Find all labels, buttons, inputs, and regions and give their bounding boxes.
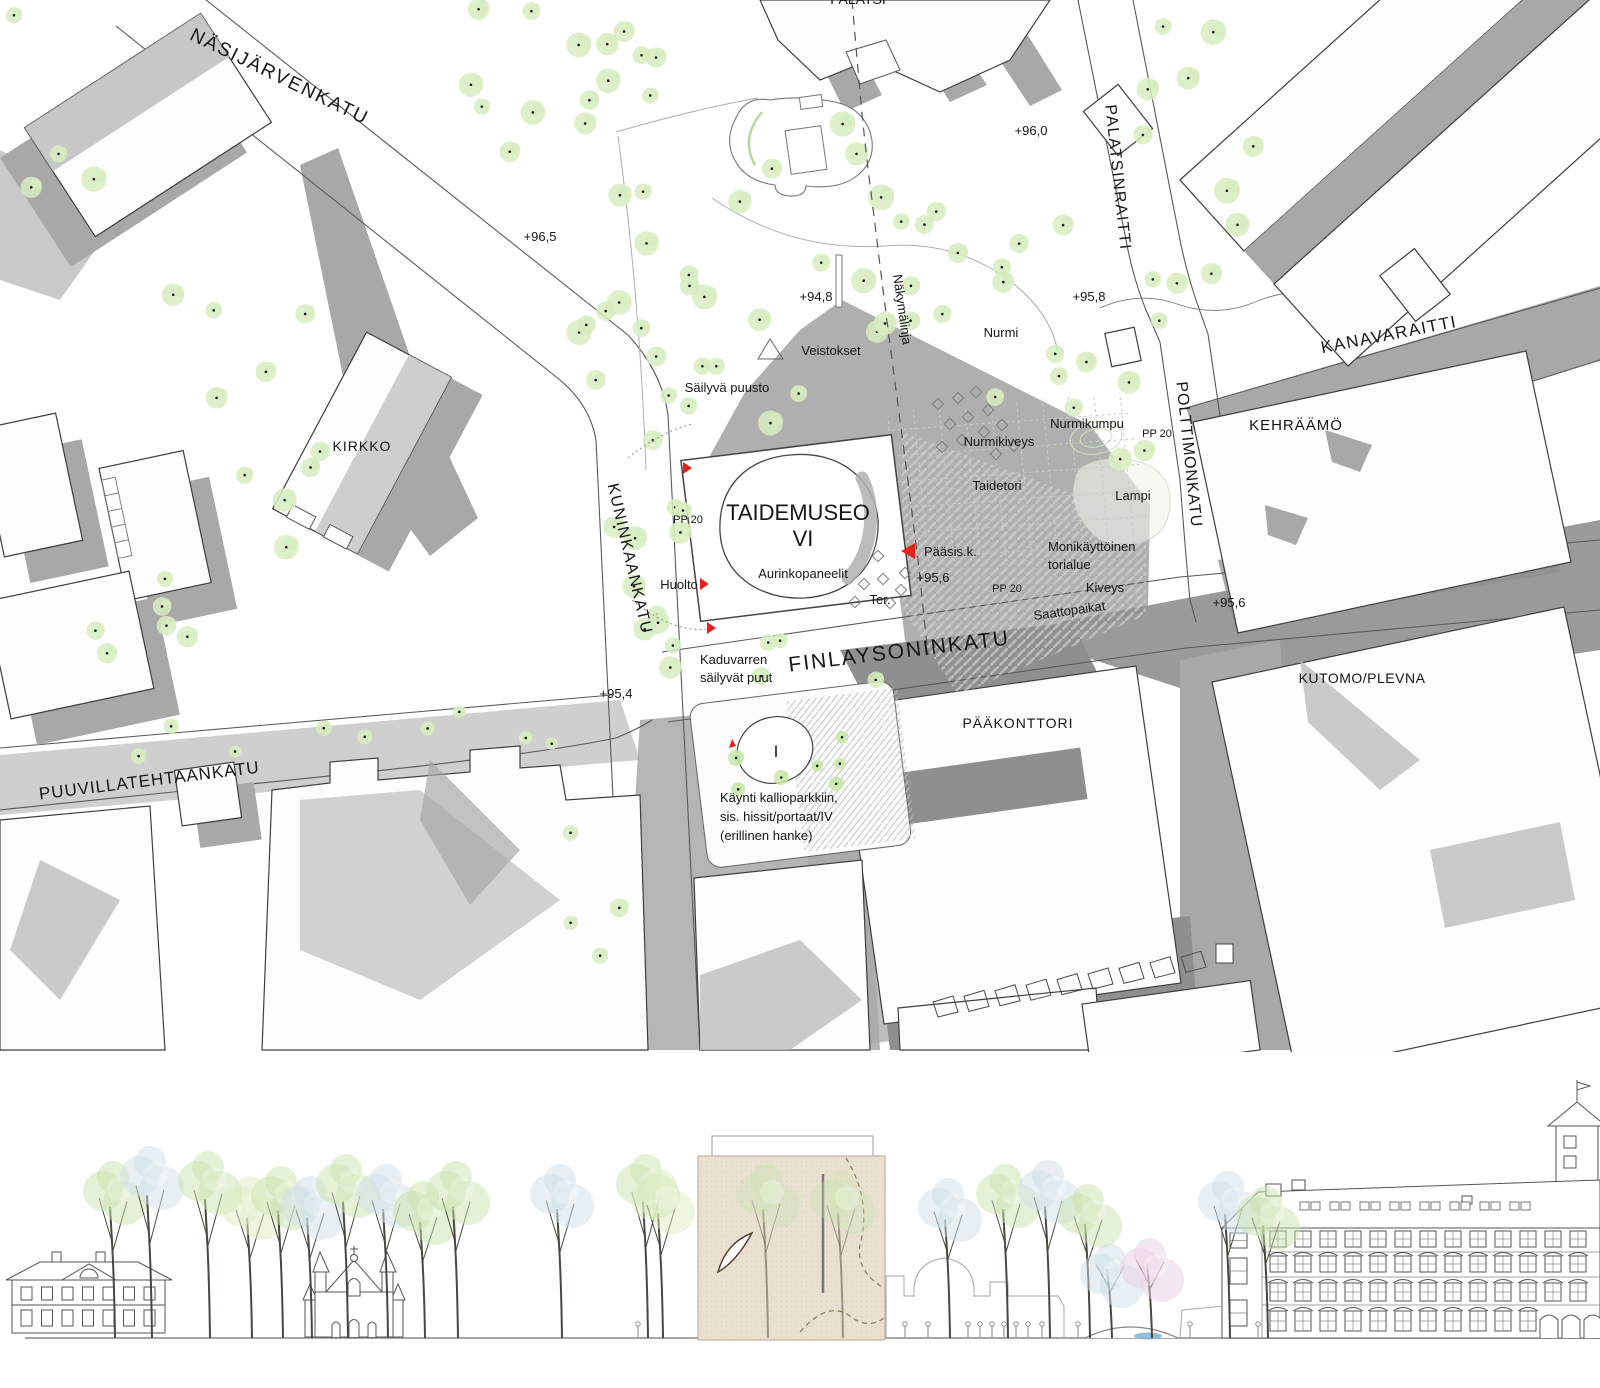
tree-trunk-dot [1176, 282, 1179, 285]
villa-window [21, 1310, 32, 1326]
site-plan-sheet: NÄSIJÄRVENKATU KUNINKAANKATU FINLAYSONIN… [0, 0, 1600, 1388]
tree-trunk-dot [1058, 375, 1061, 378]
tree-trunk-dot [1146, 88, 1149, 91]
tree-trunk-dot [703, 296, 706, 299]
tree-trunk-dot [604, 310, 607, 313]
tree-trunk-dot [93, 178, 96, 181]
spot-elevation: +94,8 [800, 289, 833, 304]
tree-trunk-dot [426, 727, 429, 730]
tree-trunk-dot [715, 365, 718, 368]
tree-trunk-dot [618, 907, 621, 910]
chapel-arch-window [348, 1279, 360, 1297]
chapel-spire [380, 1252, 396, 1272]
site-plan: NÄSIJÄRVENKATU KUNINKAANKATU FINLAYSONIN… [0, 0, 1600, 1073]
tree-trunk-dot [164, 578, 167, 581]
villa-window [83, 1287, 94, 1300]
tree-trunk-dot [682, 509, 685, 512]
annotation-terassi: Ter. [870, 592, 891, 607]
tower-cap [1548, 1102, 1600, 1126]
tree-trunk-dot [1162, 25, 1165, 28]
annotation-pp20: PP 20 [673, 514, 703, 526]
tree-trunk-dot [957, 252, 960, 255]
tree-trunk-dot [480, 105, 483, 108]
annotation-nurmikumpu: Nurmikumpu [1050, 416, 1124, 431]
tree-trunk [643, 1202, 648, 1339]
spot-elevation: +95,8 [1073, 289, 1106, 304]
roof-dormer [1330, 1202, 1339, 1210]
tree-trunk [205, 1199, 210, 1338]
tree-trunk-dot [304, 313, 307, 316]
tree-trunk-dot [1226, 189, 1229, 192]
annotation-paasisaankaynti: Pääsis.k. [924, 544, 977, 559]
tree-trunk-dot [30, 186, 33, 189]
tree-canopy-light [835, 1186, 859, 1210]
tree-trunk-dot [607, 79, 610, 82]
villa-window [124, 1310, 135, 1326]
tree-trunk-dot [234, 750, 237, 753]
tower-window [1564, 1136, 1576, 1148]
roof-dormer [1401, 1202, 1410, 1210]
tree-trunk-dot [283, 499, 286, 502]
annotation-pp20: PP 20 [992, 583, 1022, 595]
tree-trunk-dot [618, 301, 621, 304]
tree-trunk-dot [841, 123, 844, 126]
water-patch [1134, 1333, 1162, 1340]
tree-trunk-dot [215, 397, 218, 400]
person-figure [1188, 1322, 1192, 1326]
tree-trunk-dot [1085, 361, 1088, 364]
building-label-taidemuseo-vi: VI [793, 526, 814, 551]
tree-trunk-dot [1143, 449, 1146, 452]
tree-trunk-dot [470, 83, 473, 86]
building-label-kirkko: KIRKKO [333, 438, 392, 454]
villa-window [62, 1310, 73, 1326]
tree [1212, 21, 1226, 35]
tower-window [1564, 1156, 1576, 1168]
building-label-kehraamo: KEHRÄÄMÖ [1249, 416, 1343, 434]
courtyard-structure [785, 126, 827, 175]
tree-trunk-dot [265, 371, 268, 374]
elevation-tree-layer [83, 1146, 1300, 1338]
spot-elevation: +96,0 [1015, 123, 1048, 138]
tree-canopy-light [1260, 1202, 1284, 1226]
tree-trunk-dot [319, 450, 322, 453]
tree-trunk-dot [508, 150, 511, 153]
tree-trunk-dot [569, 832, 572, 835]
annotation-aurinkopaneelit: Aurinkopaneelit [758, 566, 848, 581]
tree-trunk-dot [599, 954, 602, 957]
tree-trunk-dot [1072, 406, 1075, 409]
tree-trunk-dot [767, 641, 770, 644]
tree-trunk-dot [1142, 134, 1145, 137]
building [0, 413, 83, 557]
ground-mound [1085, 1327, 1178, 1338]
tree-trunk-dot [477, 8, 480, 11]
roof-dormer [1450, 1202, 1459, 1210]
roof-dormer [1300, 1202, 1309, 1210]
chapel-group [303, 1246, 405, 1337]
background-silhouette-dome [886, 1258, 1064, 1338]
tree-trunk-dot [1001, 266, 1004, 269]
building-palatsi-group [760, 0, 1050, 92]
tree-canopy-light [554, 1180, 578, 1204]
tree-trunk-dot [619, 194, 622, 197]
tree-trunk-dot [880, 196, 883, 199]
tree-trunk-dot [874, 679, 877, 682]
tree-trunk-dot [165, 624, 168, 627]
tree-canopy-light [450, 1177, 474, 1201]
tree-trunk-dot [1054, 353, 1057, 356]
spot-elevation: +96,5 [524, 229, 557, 244]
tree-trunk-dot [1152, 278, 1155, 281]
tree-trunk-dot [243, 474, 246, 477]
tree-trunk-dot [640, 54, 643, 57]
tree-trunk-dot [994, 396, 997, 399]
annotation-kaduvarren-1: Kaduvarren [700, 652, 767, 667]
annotation-taidetori: Taidetori [972, 478, 1021, 493]
tree [1226, 180, 1240, 194]
tree-canopy-light [1144, 1254, 1168, 1278]
tree-trunk-dot [569, 922, 572, 925]
person-figure [1076, 1322, 1080, 1326]
villa-window [42, 1287, 53, 1300]
tree-trunk-dot [94, 629, 97, 632]
tree-trunk-dot [458, 711, 461, 714]
roof-dormer [1311, 1202, 1320, 1210]
tree-trunk-dot [1062, 224, 1065, 227]
wall-element [836, 255, 842, 307]
tree-trunk-dot [322, 727, 325, 730]
annotation-nurmi: Nurmi [984, 325, 1019, 340]
chapel-door [368, 1322, 376, 1337]
annotation-kaynti-1: Käynti kallioparkkiin, [720, 790, 838, 805]
tree-trunk-dot [640, 327, 643, 330]
person-figure [926, 1322, 930, 1326]
skylight-end [1216, 944, 1233, 963]
loading-arch [1584, 1315, 1600, 1338]
building-small-2 [1105, 327, 1141, 366]
annotation-nurmikiveys: Nurmikiveys [964, 434, 1035, 449]
annotation-veistokset: Veistokset [801, 343, 861, 358]
tree [532, 102, 546, 116]
tree [645, 233, 658, 246]
tree-trunk-dot [530, 10, 533, 13]
person-figure [1014, 1322, 1018, 1326]
roof-dormer [1431, 1202, 1440, 1210]
tree-trunk-dot [667, 394, 670, 397]
annotation-huolto: Huolto [660, 577, 698, 592]
tree-canopy-light [655, 1186, 679, 1210]
villa-window [103, 1310, 114, 1326]
roof-dormer [1420, 1202, 1429, 1210]
tree-trunk-dot [820, 261, 823, 264]
tree-trunk-dot [1252, 145, 1255, 148]
tree-trunk-dot [585, 324, 588, 327]
tree [618, 292, 632, 306]
tree-trunk-dot [655, 355, 658, 358]
tree-canopy-light [942, 1194, 966, 1218]
roof-dormer [1521, 1202, 1530, 1210]
tree-trunk-dot [606, 43, 609, 46]
tree [470, 74, 483, 87]
annotation-kaduvarren-2: säilyvät puut [700, 670, 773, 685]
tree-trunk-dot [161, 605, 164, 608]
villa-window [103, 1287, 114, 1300]
tree [93, 168, 107, 182]
tree-trunk-dot [935, 210, 938, 213]
tree-trunk [1045, 1206, 1050, 1338]
tree-trunk-dot [363, 735, 366, 738]
tree-canopy-light [1082, 1200, 1106, 1224]
courtyard-notch [799, 95, 822, 110]
spot-elevation: +95,4 [600, 686, 633, 701]
museum-elevation-group [698, 1136, 885, 1340]
tree-trunk-dot [862, 279, 865, 282]
spot-elevation: +95,6 [917, 570, 950, 585]
factory-chimney [1292, 1180, 1305, 1190]
tree-trunk-dot [57, 153, 60, 156]
villa-window [124, 1287, 135, 1300]
tree-trunk [557, 1209, 562, 1338]
person-figure [1026, 1322, 1030, 1326]
chapel-door [332, 1322, 340, 1337]
tree-trunk-dot [688, 274, 691, 277]
tree-trunk [658, 1214, 663, 1339]
tree-trunk-dot [1236, 224, 1239, 227]
tree-trunk-dot [679, 531, 682, 534]
building-label-kutomo: KUTOMO/PLEVNA [1299, 670, 1426, 686]
tree-trunk-dot [645, 242, 648, 245]
roof-dormer [1480, 1202, 1489, 1210]
chapel-buttress [305, 1300, 315, 1337]
tree-trunk-dot [900, 220, 903, 223]
tree-trunk-dot [642, 190, 645, 193]
tree-trunk-dot [701, 365, 704, 368]
tree-trunk-dot [839, 762, 842, 765]
villa-window [144, 1287, 155, 1300]
tree-trunk-dot [1212, 31, 1215, 34]
person-figure [990, 1322, 994, 1326]
tree-trunk-dot [884, 322, 887, 325]
person-figure [903, 1322, 907, 1326]
chapel-door [349, 1320, 359, 1338]
building-label-palatsi: PALATSI [830, 0, 886, 7]
annotation-monikayttoinen: Monikäyttöinen [1048, 539, 1135, 554]
roof-dormer [1491, 1202, 1500, 1210]
annotation-pp20: PP 20 [1142, 428, 1172, 440]
tree-trunk-dot [655, 56, 658, 59]
person-figure [1002, 1322, 1006, 1326]
tree [769, 412, 783, 426]
entrance-arrow-icon [707, 622, 716, 634]
tree [703, 286, 717, 300]
tree [880, 186, 894, 200]
building-label-taidemuseo: TAIDEMUSEO [726, 500, 870, 525]
tree [841, 113, 855, 127]
tree-trunk-dot [524, 737, 527, 740]
tree-trunk-dot [758, 318, 761, 321]
tree-trunk-dot [1018, 242, 1021, 245]
tree-trunk-dot [1210, 272, 1213, 275]
tree-trunk-dot [623, 30, 626, 33]
tree-trunk-dot [594, 379, 597, 382]
chapel-buttress [393, 1300, 403, 1337]
tree-trunk-dot [1119, 458, 1122, 461]
tree-canopy-light [202, 1167, 226, 1191]
tree-trunk-dot [309, 466, 312, 469]
tree-canopy-light [144, 1162, 168, 1186]
tree-trunk-dot [735, 757, 738, 760]
tree-trunk-dot [106, 652, 109, 655]
tree-trunk-dot [816, 765, 819, 768]
tree-trunk-dot [212, 309, 215, 312]
tree-trunk-dot [285, 546, 288, 549]
building-label-paakonttori: PÄÄKONTTORI [962, 715, 1073, 731]
tree-trunk-dot [649, 94, 652, 97]
tree-trunk-dot [797, 392, 800, 395]
tree-trunk [1003, 1209, 1008, 1338]
person-figure [978, 1322, 982, 1326]
museum-parapet [712, 1136, 873, 1156]
tree [862, 270, 876, 284]
tree-trunk-dot [941, 313, 944, 316]
villa-window [21, 1287, 32, 1300]
tree-trunk-dot [1128, 381, 1131, 384]
tree-trunk-dot [923, 223, 926, 226]
tree-trunk-dot [186, 635, 189, 638]
tree-trunk-dot [1187, 77, 1190, 80]
annotation-sailyva-puusto: Säilyvä puusto [685, 380, 770, 395]
annotation-lampi: Lampi [1115, 488, 1151, 503]
tree-trunk-dot [771, 167, 774, 170]
tree [577, 34, 591, 48]
tree-trunk-dot [1002, 281, 1005, 284]
villa-window [144, 1310, 155, 1326]
person-figure [636, 1322, 640, 1326]
tree-trunk-dot [910, 285, 913, 288]
chapel-dome [351, 1255, 358, 1262]
tree-trunk-dot [172, 293, 175, 296]
loading-arch [1540, 1315, 1558, 1338]
tree-trunk-dot [688, 285, 691, 288]
annotation-kaynti-3: (erillinen hanke) [720, 828, 813, 843]
villa-group [6, 1252, 172, 1333]
tree-trunk-dot [769, 422, 772, 425]
tree-trunk-dot [1158, 319, 1161, 322]
tree-trunk-dot [672, 644, 675, 647]
villa-window [83, 1310, 94, 1326]
building-palatsi [760, 0, 1050, 92]
roof-dormer [1371, 1202, 1380, 1210]
tree-trunk-dot [669, 666, 672, 669]
tree [285, 537, 299, 551]
chapel-tower [315, 1272, 326, 1292]
tree-trunk-dot [739, 200, 742, 203]
tree-trunk-dot [855, 153, 858, 156]
tree [607, 70, 620, 83]
tree-canopy-light [760, 1180, 784, 1204]
loading-arch [1562, 1315, 1580, 1338]
chapel-spire [313, 1252, 329, 1272]
tree-canopy-light [1042, 1176, 1066, 1200]
chapel-cross-icon [350, 1246, 358, 1254]
tree-trunk-dot [13, 14, 16, 17]
street-label-kuninkaankatu: KUNINKAANKATU [604, 482, 655, 636]
villa-window [62, 1287, 73, 1300]
elevation-drawing [6, 1080, 1600, 1340]
annotation-kaynti-2: sis. hissit/portaat/IV [720, 809, 833, 824]
tree-trunk-dot [779, 639, 782, 642]
tree-trunk-dot [170, 725, 173, 728]
building-west-1-group [0, 409, 109, 587]
roof-dormer [1390, 1202, 1399, 1210]
tree-trunk-dot [687, 405, 690, 408]
annotation-torialue: torialue [1048, 557, 1091, 572]
roof-dormer [1510, 1202, 1519, 1210]
villa-window [42, 1310, 53, 1326]
person-figure [1040, 1322, 1044, 1326]
annotation-parking-level: I [774, 742, 779, 761]
person-figure [966, 1322, 970, 1326]
annotation-kiveys: Kiveys [1086, 580, 1125, 595]
tree-trunk-dot [577, 44, 580, 47]
tree-trunk-dot [137, 755, 140, 758]
museum-texture [698, 1156, 885, 1340]
tree-trunk-dot [657, 621, 660, 624]
tree-trunk-dot [841, 736, 844, 739]
tree-trunk-dot [835, 782, 838, 785]
tree-trunk-dot [550, 742, 553, 745]
roof-dormer [1461, 1202, 1470, 1210]
tree-trunk-dot [584, 122, 587, 125]
tree-trunk-dot [532, 111, 535, 114]
spot-elevation: +95,6 [1213, 595, 1246, 610]
tree-trunk-dot [780, 776, 783, 779]
tower-flag-icon [1577, 1082, 1590, 1090]
tree-trunk-dot [588, 99, 591, 102]
roof-dormer [1341, 1202, 1350, 1210]
roof-dormer [1360, 1202, 1369, 1210]
